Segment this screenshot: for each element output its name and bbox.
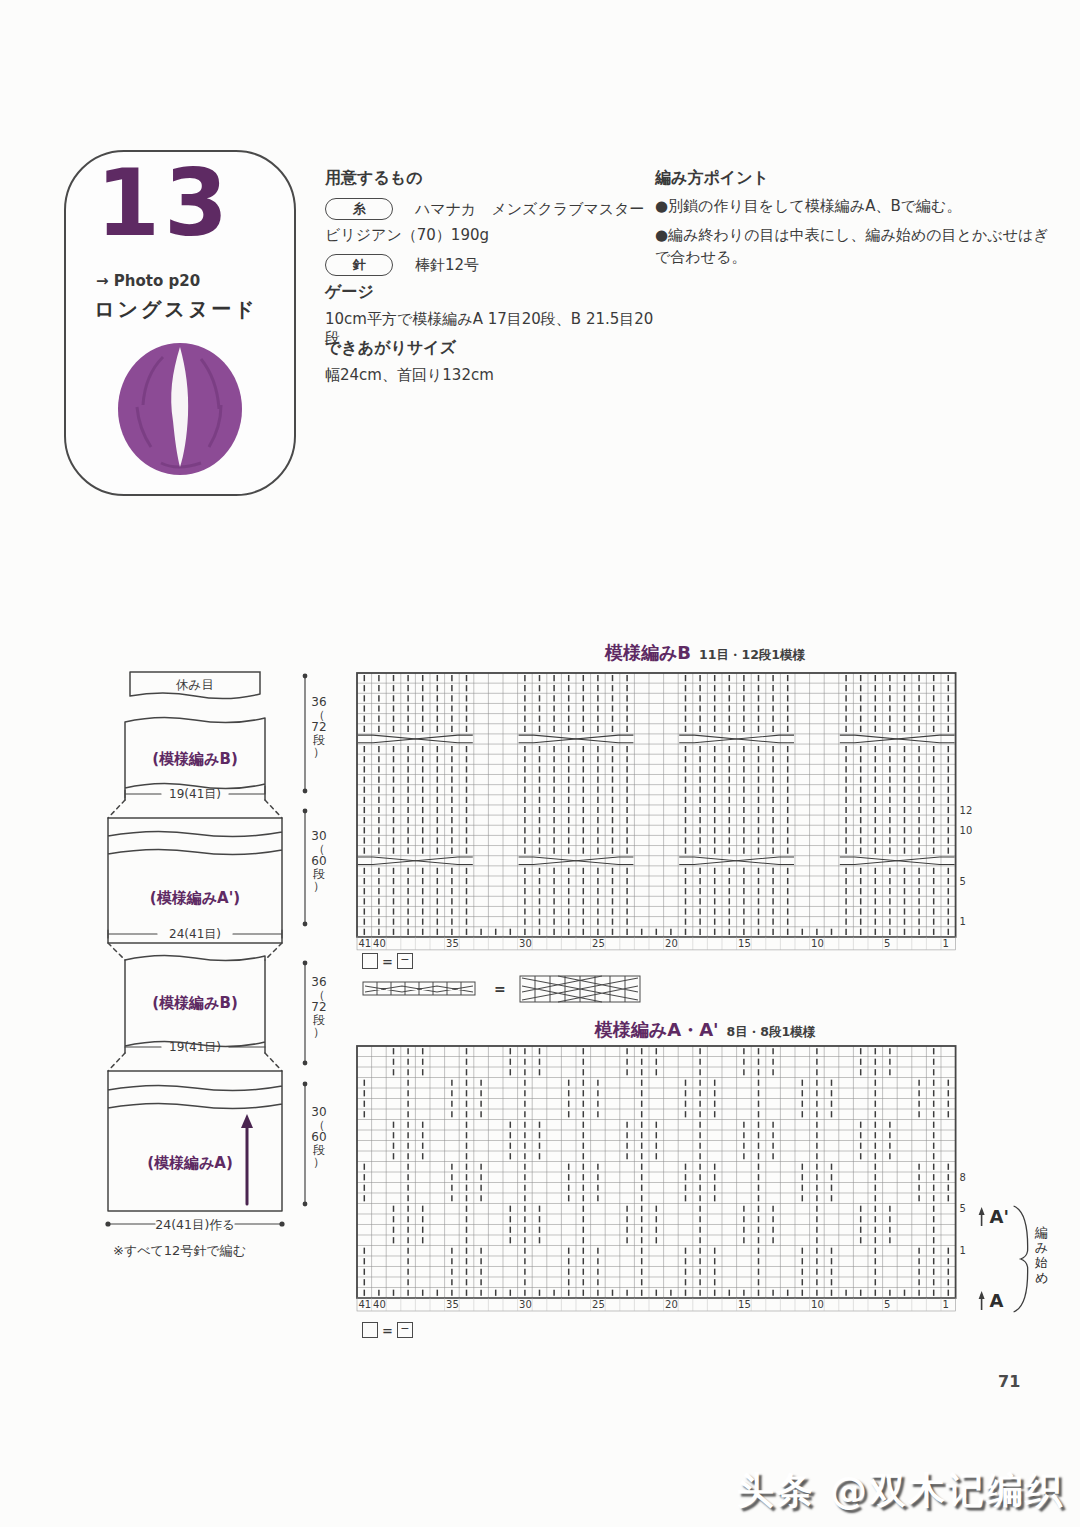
needle-text: 棒針12号 [415, 256, 479, 275]
svg-text:5: 5 [960, 1203, 966, 1214]
measure-b2: 36（72段） [311, 975, 326, 1039]
gauge-heading: ゲージ [325, 282, 655, 303]
measure-a2: 30（60段） [311, 829, 326, 893]
chart-a-title: 模様編みA・A'8目・8段1模様 [395, 1018, 1015, 1042]
svg-text:35: 35 [446, 1299, 459, 1310]
svg-text:25: 25 [592, 1299, 605, 1310]
chart-b-grid: 414035302520151051121051 [355, 671, 984, 973]
chart-b-title: 模様編みB11目・12段1模様 [395, 641, 1015, 665]
svg-text:15: 15 [738, 1299, 751, 1310]
svg-text:41: 41 [358, 1299, 371, 1310]
points-heading: 編み方ポイント [655, 168, 1055, 189]
watermark: 头条 @双木记编织 [737, 1466, 1064, 1516]
svg-text:35: 35 [446, 938, 459, 949]
svg-text:20: 20 [665, 938, 678, 949]
snood-photo [105, 335, 255, 489]
cast-on-label: 24(41目)作る [155, 1217, 234, 1232]
blank-square-symbol [362, 953, 378, 969]
chart-b-legend-cable: = [362, 972, 762, 1010]
block-a-label: (模様編みA) [147, 1154, 233, 1172]
svg-text:1: 1 [960, 1245, 966, 1256]
schematic-diagram: 休み目 (模様編みB) 19(41目) (模様編みA') 24(41目) (模様… [95, 658, 347, 1272]
needle-pill: 針 [325, 254, 393, 276]
blank-square-symbol [362, 1322, 378, 1338]
svg-text:編み始め: 編み始め [1034, 1225, 1048, 1285]
project-title: ロングスヌード [94, 296, 258, 323]
width-b1: 19(41目) [169, 787, 221, 801]
width-b2: 19(41目) [169, 1040, 221, 1054]
svg-text:40: 40 [373, 1299, 386, 1310]
svg-text:5: 5 [960, 876, 966, 887]
page-number: 71 [998, 1372, 1020, 1391]
svg-text:A': A' [990, 1206, 1009, 1227]
rest-label: 休み目 [176, 677, 214, 692]
legend-equals: = [494, 981, 506, 997]
chart-a-legend-blank: = − [362, 1322, 413, 1338]
svg-text:30: 30 [519, 1299, 532, 1310]
svg-text:12: 12 [960, 805, 973, 816]
yarn-pill: 糸 [325, 198, 393, 220]
yarn-text: ハマナカ メンズクラブマスター [415, 200, 645, 219]
block-b1-label: (模様編みB) [152, 750, 238, 768]
point-item: ●編み終わりの目は中表にし、編み始めの目とかぶせはぎで合わせる。 [655, 225, 1055, 269]
materials-section: 用意するもの 糸 ハマナカ メンズクラブマスター ビリジアン（70）190g 針… [325, 168, 645, 276]
svg-text:10: 10 [811, 938, 824, 949]
yarn-text-2: ビリジアン（70）190g [325, 226, 645, 245]
svg-text:5: 5 [884, 938, 890, 949]
purl-symbol: − [397, 1322, 413, 1338]
point-item: ●別鎖の作り目をして模様編みA、Bで編む。 [655, 196, 1055, 218]
svg-text:10: 10 [811, 1299, 824, 1310]
svg-text:25: 25 [592, 938, 605, 949]
svg-text:30: 30 [519, 938, 532, 949]
size-heading: できあがりサイズ [325, 338, 655, 359]
materials-heading: 用意するもの [325, 168, 645, 189]
project-number: 13 [96, 158, 232, 250]
purl-symbol: − [397, 953, 413, 969]
svg-text:A: A [990, 1290, 1004, 1311]
svg-text:40: 40 [373, 938, 386, 949]
points-section: 編み方ポイント ●別鎖の作り目をして模様編みA、Bで編む。 ●編み終わりの目は中… [655, 168, 1055, 268]
measure-a: 30（60段） [311, 1105, 326, 1169]
photo-reference: → Photo p20 [96, 272, 200, 290]
schematic-note: ※すべて12号針で編む [113, 1243, 246, 1258]
svg-text:1: 1 [960, 916, 966, 927]
svg-text:41: 41 [359, 938, 372, 949]
svg-text:8: 8 [960, 1172, 966, 1183]
svg-text:10: 10 [960, 825, 973, 836]
block-b2-label: (模様編みB) [152, 994, 238, 1012]
block-a2-label: (模様編みA') [150, 889, 240, 907]
svg-text:15: 15 [738, 938, 751, 949]
size-text: 幅24cm、首回り132cm [325, 366, 655, 385]
svg-text:20: 20 [665, 1299, 678, 1310]
width-a2: 24(41目) [169, 927, 221, 941]
chart-a-grid: 414035302520151051851A'A編み始め [355, 1044, 1056, 1334]
arrow-icon: → [96, 272, 109, 290]
measure-b1: 36（72段） [311, 695, 326, 759]
size-section: できあがりサイズ 幅24cm、首回り132cm [325, 338, 655, 385]
svg-text:1: 1 [942, 1299, 948, 1310]
svg-text:1: 1 [942, 938, 948, 949]
chart-b-legend-blank: = − [362, 953, 413, 969]
svg-text:5: 5 [884, 1299, 890, 1310]
